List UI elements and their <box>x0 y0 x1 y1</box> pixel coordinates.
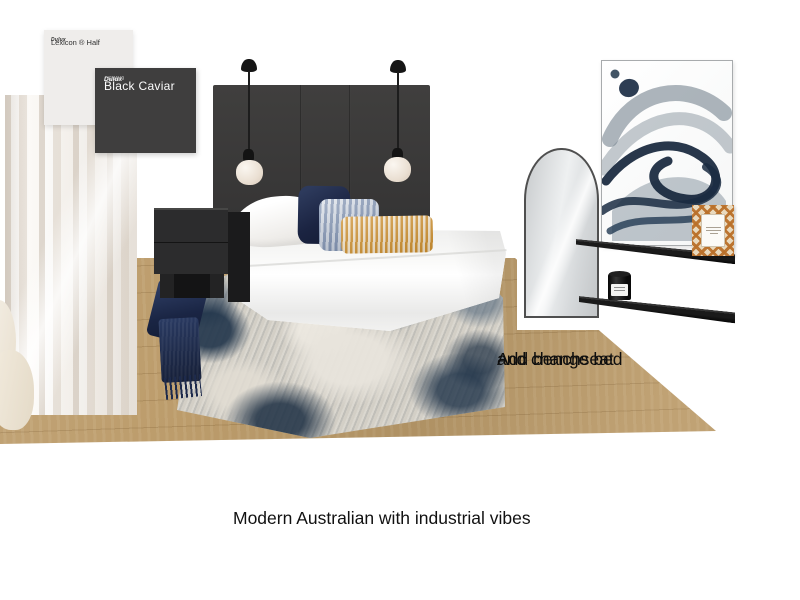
frame-text-line <box>706 230 721 231</box>
bedside-table-drawer-seam <box>154 242 228 243</box>
board-caption: Modern Australian with industrial vibes <box>233 508 593 529</box>
pendant-light-right-shade <box>384 157 411 182</box>
frame-text-line <box>710 233 718 234</box>
mustard-striped-lumbar-cushion <box>341 215 434 254</box>
frame-text-line <box>706 227 721 228</box>
candle-label-line <box>614 290 625 291</box>
bedside-table <box>154 208 228 274</box>
pendant-light-left-cord <box>248 71 250 151</box>
paint-swatch-black-caviar: DuluxSN4H9 Black Caviar <box>95 68 196 153</box>
moodboard: Dulux Lexicon ® Half DuluxSN4H9 Black Ca… <box>0 0 800 600</box>
pendant-light-right-cord <box>397 72 399 150</box>
black-candle-lid <box>609 271 630 277</box>
candle-label-line <box>614 287 625 288</box>
photo-frame-mat <box>701 214 725 247</box>
swatch-name: Lexicon ® Half <box>51 38 100 47</box>
swatch-name: Black Caviar <box>104 79 175 93</box>
patterned-photo-frame <box>692 205 734 256</box>
bedside-table-base-recess <box>174 274 210 298</box>
bedside-table-side <box>228 212 250 302</box>
candle-label <box>611 284 628 296</box>
arched-floor-mirror <box>524 148 599 318</box>
pendant-light-left-shade <box>236 160 263 185</box>
throw-fringe <box>164 374 202 400</box>
navy-throw-blanket <box>158 317 201 383</box>
annotation-note-line2: and change bed <box>497 346 623 373</box>
